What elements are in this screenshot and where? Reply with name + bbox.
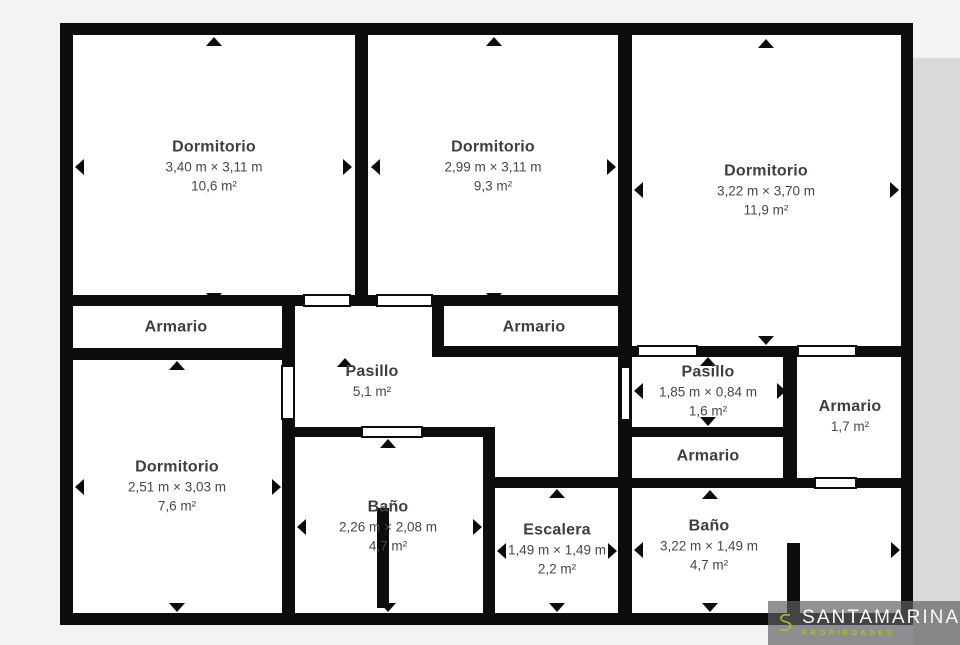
brand-text: SANTAMARINA PROPIEDADES [802,608,960,638]
dimension-arrow-right-icon [343,159,352,175]
wall [483,477,632,488]
wall [618,427,783,437]
dimension-arrow-right-icon [473,519,482,535]
dimension-arrow-down-icon [700,417,716,426]
dimension-arrow-left-icon [371,159,380,175]
dimension-arrow-down-icon [380,603,396,612]
wall [60,23,73,625]
brand-tagline: PROPIEDADES [802,628,960,638]
dimension-arrow-down-icon [206,293,222,302]
dimension-arrow-left-icon [297,519,306,535]
dimension-arrow-left-icon [75,159,84,175]
dimension-arrow-right-icon [607,159,616,175]
door-opening [281,365,295,420]
dimension-arrow-up-icon [700,357,716,366]
door-opening [361,426,423,438]
dimension-arrow-left-icon [634,182,643,198]
dimension-arrow-left-icon [634,542,643,558]
wall [618,23,632,613]
wall [282,295,295,613]
dimension-arrow-right-icon [777,383,786,399]
dimension-arrow-down-icon [549,603,565,612]
dimension-arrow-right-icon [890,182,899,198]
door-opening [814,477,857,489]
santamarina-logo-icon [777,607,793,639]
dimension-arrow-right-icon [272,479,281,495]
dimension-arrow-up-icon [702,490,718,499]
dimension-arrow-up-icon [206,37,222,46]
door-opening [637,345,698,357]
dimension-arrow-up-icon [337,358,353,367]
dimension-arrow-right-icon [608,543,617,559]
dimension-arrow-up-icon [486,37,502,46]
brand-name: SANTAMARINA [802,608,960,628]
wall-stub [377,508,389,608]
right-gray-band [913,58,960,645]
door-opening [376,294,433,307]
wall [60,23,913,35]
door-opening [797,345,857,357]
dimension-arrow-down-icon [486,293,502,302]
wall [483,427,495,613]
floor-plan: Dormitorio 3,40 m × 3,11 m 10,6 m² Dormi… [0,0,960,645]
brand-overlay: SANTAMARINA PROPIEDADES [768,601,960,645]
wall [60,348,295,360]
wall [355,23,368,306]
wall [783,346,797,488]
dimension-arrow-right-icon [891,542,900,558]
wall [901,23,913,625]
wall [618,478,913,488]
dimension-arrow-up-icon [380,439,396,448]
dimension-arrow-left-icon [75,479,84,495]
dimension-arrow-up-icon [758,39,774,48]
dimension-arrow-left-icon [634,383,643,399]
dimension-arrow-up-icon [549,489,565,498]
door-opening [620,366,631,421]
dimension-arrow-down-icon [758,336,774,345]
dimension-arrow-up-icon [169,361,185,370]
dimension-arrow-down-icon [169,603,185,612]
door-opening [303,294,351,307]
dimension-arrow-left-icon [497,543,506,559]
dimension-arrow-down-icon [702,603,718,612]
